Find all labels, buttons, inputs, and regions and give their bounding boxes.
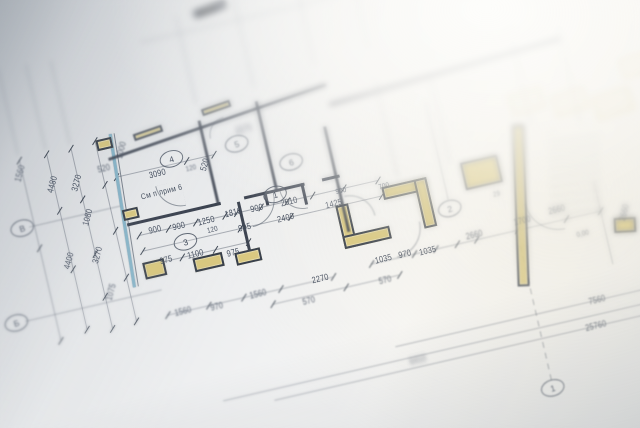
door-swing-arc bbox=[206, 117, 228, 139]
dimension-line bbox=[29, 205, 122, 227]
faint-wall-outline bbox=[507, 86, 546, 117]
tick-mark bbox=[369, 260, 375, 268]
dimension-label: 2270 bbox=[311, 272, 330, 286]
dimension-line bbox=[25, 64, 46, 150]
dimension-label: 0,00 bbox=[575, 227, 589, 239]
faint-wall-outline bbox=[592, 86, 635, 120]
tick-mark bbox=[343, 283, 349, 291]
dimension-line bbox=[429, 75, 450, 163]
dimension-label: 1560 bbox=[13, 164, 27, 183]
dimension-label: 3270 bbox=[90, 245, 104, 264]
dimension-line bbox=[274, 296, 640, 400]
tick-mark bbox=[136, 231, 142, 239]
dimension-label: 970 bbox=[397, 247, 412, 260]
dimension-label: 570 bbox=[301, 294, 316, 307]
tick-mark bbox=[270, 300, 276, 308]
dimension-label: 7560 bbox=[588, 293, 607, 307]
room-number-bubble: 5 bbox=[223, 132, 251, 155]
dimension-label: 975 bbox=[159, 253, 174, 266]
dimension-line bbox=[348, 0, 368, 48]
dimension-label: 4480 bbox=[45, 175, 59, 194]
tick-mark bbox=[331, 273, 337, 281]
dimension-label: 520 bbox=[96, 162, 111, 175]
grid-axis-bubble: Б bbox=[2, 311, 30, 334]
dimension-label: 29 bbox=[492, 188, 501, 198]
dimension-line bbox=[233, 0, 254, 88]
wall-segment bbox=[255, 101, 279, 191]
dimension-label: 1035 bbox=[418, 244, 437, 258]
dimension-label: 970 bbox=[209, 300, 224, 313]
door-swing-arc bbox=[344, 190, 375, 221]
tick-mark bbox=[166, 225, 172, 233]
grid-axis-bubble: 1 bbox=[539, 376, 567, 399]
room-number-bubble: 6 bbox=[277, 150, 305, 173]
tick-mark bbox=[397, 271, 403, 279]
tick-mark bbox=[165, 311, 171, 319]
blueprint-photo: 9009001250120181090090520102400142530909… bbox=[0, 0, 640, 428]
dimension-label: 1560 bbox=[173, 304, 192, 318]
insulated-wall-segment bbox=[201, 100, 232, 116]
dimension-label: 905 bbox=[237, 221, 252, 234]
tick-mark bbox=[455, 240, 461, 248]
dimension-label: 1560 bbox=[249, 287, 268, 301]
dimension-line bbox=[295, 0, 315, 64]
dimension-label: 900 bbox=[171, 220, 186, 233]
dimension-line bbox=[50, 60, 70, 144]
tick-mark bbox=[412, 250, 418, 258]
dimension-label: 1075 bbox=[104, 282, 118, 301]
faint-wall-outline bbox=[550, 86, 589, 117]
tick-mark bbox=[310, 191, 316, 199]
insulated-wall-segment bbox=[122, 207, 140, 221]
dimension-label: 3270 bbox=[69, 173, 83, 192]
insulated-wall-segment bbox=[133, 125, 164, 141]
tick-mark bbox=[180, 253, 186, 261]
tick-mark bbox=[211, 151, 217, 159]
dimension-line bbox=[25, 289, 162, 321]
dimension-line bbox=[0, 67, 19, 155]
dimension-label: 1080 bbox=[80, 208, 94, 227]
dimension-label: 1035 bbox=[374, 252, 393, 266]
dimension-label: 1570 bbox=[234, 122, 253, 136]
dimension-label: 25760 bbox=[584, 318, 607, 333]
tick-mark bbox=[140, 247, 146, 255]
dimension-label: 900 bbox=[147, 223, 162, 236]
dimension-line bbox=[375, 80, 398, 178]
dimension-label: 2400 bbox=[276, 211, 295, 225]
dimension-label: 2660 bbox=[465, 228, 484, 242]
dimension-label: 120 bbox=[185, 162, 198, 173]
door-swing-arc bbox=[525, 196, 566, 237]
floor-plan-layer: 9009001250120181090090520102400142530909… bbox=[0, 0, 640, 428]
insulated-wall-segment bbox=[460, 155, 503, 191]
dimension-line bbox=[425, 102, 448, 200]
tick-mark bbox=[278, 285, 284, 293]
faint-wall-outline bbox=[618, 51, 640, 79]
insulated-wall-segment bbox=[413, 177, 437, 229]
dimension-line bbox=[140, 0, 423, 43]
tick-mark bbox=[241, 294, 247, 302]
dimension-label: 570 bbox=[378, 273, 393, 286]
tick-mark bbox=[564, 215, 570, 223]
grid-axis-bubble: 2 bbox=[436, 197, 464, 220]
